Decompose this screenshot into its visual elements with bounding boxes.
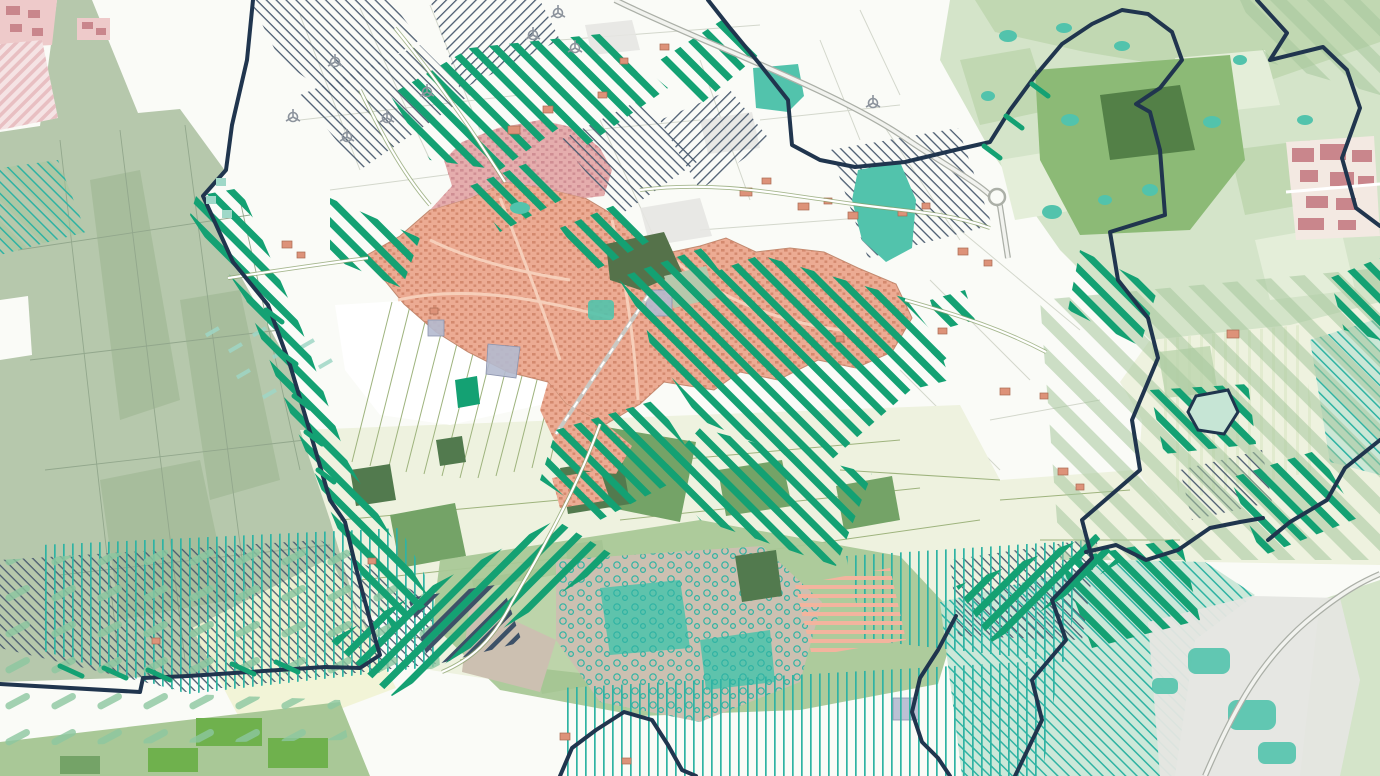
right-edge-village (1286, 136, 1380, 240)
emerald-blob (455, 376, 480, 408)
map-viewport[interactable] (0, 0, 1380, 776)
roundabout (989, 189, 1005, 205)
sports-pool (588, 300, 614, 320)
map-canvas[interactable] (0, 0, 1380, 776)
